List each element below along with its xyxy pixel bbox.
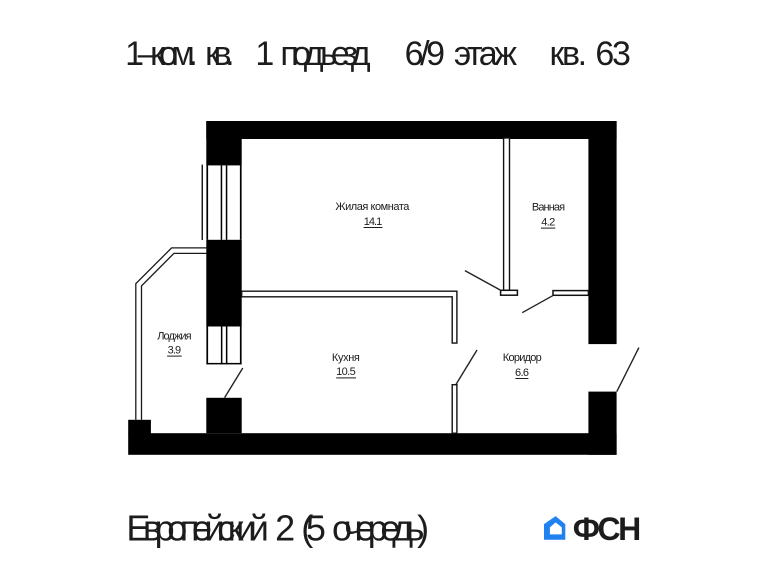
svg-text:Кухня: Кухня (332, 352, 360, 364)
svg-text:4.2: 4.2 (541, 216, 555, 228)
svg-text:кв. 63: кв. 63 (550, 35, 631, 73)
svg-text:6.6: 6.6 (515, 367, 529, 379)
svg-text:6/9 этаж: 6/9 этаж (405, 35, 518, 73)
svg-text:10.5: 10.5 (336, 366, 356, 378)
svg-text:Лоджия: Лоджия (157, 330, 191, 342)
svg-text:ФСН: ФСН (573, 511, 642, 547)
svg-text:Коридор: Коридор (503, 352, 542, 364)
svg-text:3.9: 3.9 (168, 344, 182, 356)
svg-text:Ванная: Ванная (532, 201, 565, 213)
svg-text:1 подъезд: 1 подъезд (255, 35, 370, 73)
svg-text:Жилая комната: Жилая комната (335, 201, 410, 213)
svg-text:1–ком. кв.: 1–ком. кв. (125, 35, 235, 73)
svg-text:14.1: 14.1 (364, 216, 383, 228)
svg-text:Европейский 2 (5 очередь): Европейский 2 (5 очередь) (126, 508, 429, 549)
